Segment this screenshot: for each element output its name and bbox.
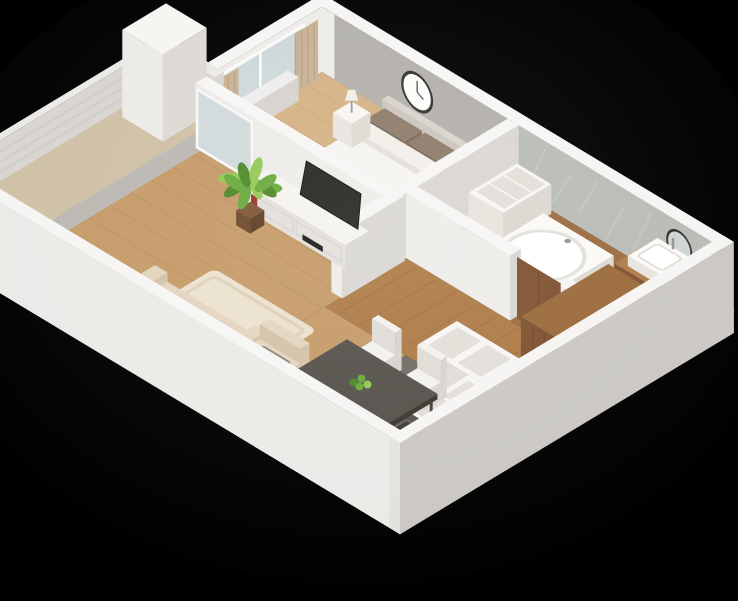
light-vignette [0,0,738,585]
floorplan-3d-scene [0,0,738,601]
apartment-floorplan-render [0,0,738,601]
